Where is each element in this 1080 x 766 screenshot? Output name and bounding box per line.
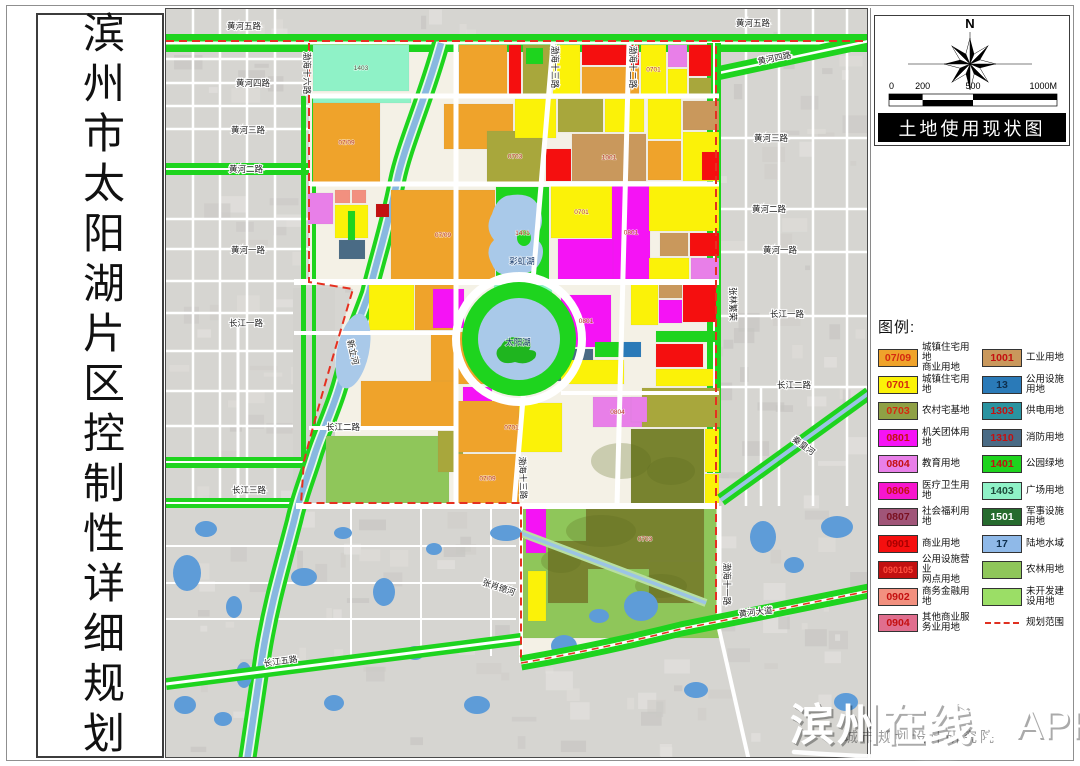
terrain-texture (209, 87, 218, 93)
map-parcel (689, 45, 711, 76)
legend-label: 医疗卫生用地 (922, 481, 976, 502)
map-parcel (631, 284, 658, 325)
map-parcel (459, 45, 507, 94)
legend-swatch: 07/09 (878, 349, 918, 367)
legend-item: 0801机关团体用地 (878, 425, 976, 452)
road-label: 黄河五路 (736, 18, 771, 28)
parcel-code: 0703 (508, 154, 523, 161)
panel-divider (870, 8, 871, 758)
legend-item: 0904其他商业服 务业用地 (878, 610, 976, 637)
legend-item: 17陆地水域 (982, 531, 1070, 558)
terrain-texture (512, 717, 537, 722)
pond (214, 712, 232, 726)
map-parcel (528, 571, 546, 621)
legend-label: 广场用地 (1026, 486, 1064, 496)
road-label: 渤海十三路 (517, 456, 528, 499)
terrain-texture (818, 538, 835, 552)
terrain-texture (276, 299, 293, 307)
map-parcel (308, 193, 333, 224)
map-parcel (656, 369, 713, 386)
terrain-texture (204, 203, 230, 219)
pond (684, 682, 708, 698)
terrain-texture (236, 222, 254, 232)
terrain-texture (818, 695, 831, 713)
legend-item: 1303供电用地 (982, 398, 1070, 425)
map-parcel (631, 397, 647, 422)
legend-item: 1310消防用地 (982, 425, 1070, 452)
parcel-code: 07/09 (338, 140, 355, 147)
legend-swatch: 13 (982, 376, 1022, 394)
terrain-texture (546, 671, 573, 690)
legend-swatch: 0902 (878, 588, 918, 606)
legend-label: 供电用地 (1026, 406, 1064, 416)
legend-item: 未开发建设用地 (982, 584, 1070, 611)
terrain-texture (764, 663, 778, 669)
scale-tick: 0 (889, 81, 894, 91)
planning-map-page: 滨州市太阳湖片区控制性详细规划 1403070107/090703100107/… (0, 0, 1080, 766)
legend-item: 1401公园绿地 (982, 451, 1070, 478)
terrain-texture (792, 345, 803, 358)
legend-swatch: 1403 (982, 482, 1022, 500)
compass-and-scale: N02005001000M (875, 16, 1065, 110)
terrain-texture (266, 423, 292, 434)
legend-swatch: 0901 (878, 535, 918, 553)
terrain-texture (664, 659, 690, 673)
legend-label: 农村宅基地 (922, 406, 970, 416)
terrain-texture (448, 512, 468, 529)
pond (589, 609, 609, 623)
terrain-texture (226, 622, 235, 628)
terrain-texture (627, 698, 634, 710)
terrain-texture (818, 461, 847, 466)
terrain-texture (764, 583, 786, 600)
parcel-code: 1001 (602, 155, 617, 162)
road-label: 黄河二路 (752, 204, 787, 214)
pond (821, 516, 853, 538)
legend-label: 陆地水域 (1026, 539, 1064, 549)
map-parcel (369, 285, 414, 330)
parcel-code: 07/09 (479, 476, 496, 483)
pond (291, 568, 317, 586)
map-parcel (648, 141, 681, 180)
legend-item: 农林用地 (982, 557, 1070, 584)
parcel-code: 0701 (646, 67, 661, 74)
terrain-texture (476, 663, 501, 674)
legend-swatch: 090105 (878, 561, 918, 579)
pond (624, 591, 658, 621)
legend-label: 社会福利用地 (922, 507, 976, 528)
terrain-texture (250, 366, 278, 370)
terrain-texture (359, 549, 380, 561)
road-label: 黄河二路 (229, 164, 264, 174)
map-parcel (656, 331, 719, 342)
terrain-texture (297, 551, 303, 570)
map-parcel (648, 99, 681, 139)
map-parcel (689, 78, 711, 94)
legend-item: 0701城镇住宅用地 (878, 372, 976, 399)
road-label: 渤海十三路 (550, 46, 560, 89)
terrain-texture (246, 391, 265, 403)
map-parcel (526, 509, 546, 553)
scale-bar (889, 94, 923, 100)
pond (226, 596, 242, 618)
terrain-texture (501, 673, 509, 681)
terrain-texture (771, 550, 782, 564)
road-label: 黄河五路 (227, 21, 262, 31)
map-parcel (622, 342, 641, 357)
road-label: 黄河三路 (231, 125, 266, 135)
terrain-texture (231, 545, 247, 562)
legend-label: 未开发建设用地 (1026, 587, 1070, 608)
parcel-code: 0701 (504, 425, 519, 432)
terrain-texture (805, 511, 829, 520)
map-parcel (659, 300, 682, 323)
parcel-code: 1401 (515, 230, 530, 237)
pond (464, 696, 490, 714)
terrain-texture (708, 690, 733, 699)
pond (174, 696, 196, 714)
road-label: 长江一路 (770, 309, 805, 319)
legend-item: 0902商务金融用地 (878, 584, 976, 611)
legend-item: 1501军事设施用地 (982, 504, 1070, 531)
map-parcel (659, 284, 682, 298)
legend-label: 机关团体用地 (922, 428, 976, 449)
map-parcel (656, 344, 703, 367)
map-parcel (526, 48, 543, 64)
terrain-texture (727, 648, 750, 662)
legend-swatch (982, 614, 1022, 632)
scale-bar (973, 94, 1057, 100)
legend-label: 工业用地 (1026, 353, 1064, 363)
terrain-texture (366, 667, 385, 682)
legend-swatch (982, 588, 1022, 606)
terrain-texture (782, 218, 807, 232)
terrain-texture (825, 652, 841, 664)
map-parcel (683, 284, 716, 322)
map-parcel (558, 99, 603, 132)
terrain-texture (807, 129, 826, 134)
terrain-texture (437, 560, 455, 569)
parcel-code: 0804 (610, 409, 625, 416)
road-label: 黄河三路 (754, 133, 789, 143)
legend-swatch: 0801 (878, 429, 918, 447)
terrain-texture (824, 357, 837, 368)
road-label: 长江三路 (232, 485, 267, 495)
terrain-texture (191, 747, 207, 752)
terrain-texture (660, 744, 672, 756)
legend-swatch: 17 (982, 535, 1022, 553)
parcel-code: 07/09 (435, 232, 452, 239)
legend-item: 1001工业用地 (982, 345, 1070, 372)
legend-label: 公用设施营业 网点用地 (922, 555, 976, 586)
terrain-texture (254, 64, 268, 68)
map-parcel (546, 149, 571, 181)
terrain-texture (341, 553, 346, 568)
terrain-texture (764, 164, 777, 179)
legend-heading: 图例: (878, 316, 1070, 337)
parcel-code: 0801 (579, 318, 594, 325)
map-parcel (691, 258, 719, 279)
pond (834, 693, 858, 711)
terrain-texture (807, 396, 826, 406)
terrain-texture (198, 610, 210, 617)
terrain-texture (778, 616, 790, 629)
terrain-texture (567, 688, 580, 701)
landuse-map-canvas: 1403070107/090703100107/0914010701080108… (166, 9, 868, 758)
legend-item: 0804教育用地 (878, 451, 976, 478)
legend-label: 公园绿地 (1026, 459, 1064, 469)
map-parcel (668, 45, 687, 67)
map-parcel (649, 186, 719, 231)
map-panel: 1403070107/090703100107/0914010701080108… (165, 8, 868, 758)
parcel-code: 0701 (574, 209, 589, 216)
boundary-dash-sample (985, 622, 1019, 624)
terrain-texture (200, 626, 207, 632)
legend-swatch: 1501 (982, 508, 1022, 526)
farm-texture (591, 443, 651, 479)
pond (334, 527, 352, 539)
terrain-texture (698, 708, 706, 721)
legend-column-right: 1001工业用地13公用设施用地1303供电用地1310消防用地1401公园绿地… (982, 345, 1070, 637)
terrain-texture (762, 147, 785, 162)
map-parcel (660, 233, 688, 256)
terrain-texture (850, 161, 856, 166)
map-title: 土地使用现状图 (878, 113, 1066, 142)
road-label: 黄河一路 (763, 245, 798, 255)
map-parcel (376, 204, 389, 217)
pond (324, 695, 344, 711)
legend-item: 0807社会福利用地 (878, 504, 976, 531)
map-parcel (595, 342, 621, 357)
farm-texture (566, 515, 636, 547)
terrain-texture (751, 733, 760, 742)
legend-swatch: 1001 (982, 349, 1022, 367)
terrain-texture (359, 520, 386, 531)
green-corridor (301, 96, 306, 458)
pond (750, 521, 776, 553)
water-label: 彩虹湖 (509, 256, 535, 266)
terrain-texture (734, 84, 742, 99)
legend-label: 商业用地 (922, 539, 960, 549)
terrain-texture (822, 68, 832, 74)
pond (173, 555, 201, 591)
legend-item: 0806医疗卫生用地 (878, 478, 976, 505)
scale-tick: 200 (915, 81, 930, 91)
legend-label: 其他商业服 务业用地 (922, 613, 970, 634)
scale-bar (923, 100, 973, 106)
legend-label: 城镇住宅用地 商业用地 (922, 343, 976, 374)
terrain-texture (829, 324, 840, 339)
terrain-texture (847, 437, 868, 454)
map-parcel (668, 69, 687, 94)
parcel-code: 1403 (354, 65, 369, 72)
terrain-texture (444, 546, 466, 557)
scale-tick: 500 (965, 81, 980, 91)
terrain-texture (277, 214, 303, 226)
map-parcel (326, 436, 449, 503)
terrain-texture (561, 741, 586, 752)
road-label: 渤海十二路 (628, 46, 638, 89)
road-label: 黄河一路 (231, 245, 266, 255)
road-label: 长江二路 (326, 422, 361, 432)
legend-swatch: 0701 (878, 376, 918, 394)
legend-item: 07/09城镇住宅用地 商业用地 (878, 345, 976, 372)
legend-swatch: 0807 (878, 508, 918, 526)
map-parcel (690, 233, 719, 256)
terrain-texture (390, 550, 408, 567)
legend-label: 公用设施用地 (1026, 375, 1070, 396)
legend: 图例: 07/09城镇住宅用地 商业用地0701城镇住宅用地0703农村宅基地0… (878, 316, 1070, 637)
pond (195, 521, 217, 537)
scale-tick: 1000M (1029, 81, 1057, 91)
legend-label: 教育用地 (922, 459, 960, 469)
terrain-texture (421, 16, 426, 30)
map-parcel (361, 381, 454, 429)
road-label: 长江一路 (229, 318, 264, 328)
terrain-texture (570, 702, 590, 719)
legend-label: 商务金融用地 (922, 587, 976, 608)
legend-swatch: 1310 (982, 429, 1022, 447)
terrain-texture (835, 634, 840, 641)
title-panel: 滨州市太阳湖片区控制性详细规划 (36, 13, 164, 758)
terrain-texture (237, 295, 260, 311)
water-label: 太阳湖 (505, 337, 531, 347)
legend-item: 0703农村宅基地 (878, 398, 976, 425)
map-parcel (649, 258, 689, 279)
legend-item: 13公用设施用地 (982, 372, 1070, 399)
terrain-texture (804, 495, 819, 508)
page-title: 滨州市太阳湖片区控制性详细规划 (70, 11, 131, 761)
road-label: 张林繁荣 (728, 287, 738, 322)
map-parcel (339, 240, 365, 259)
pond (784, 557, 804, 573)
legend-swatch: 0904 (878, 614, 918, 632)
legend-label: 军事设施用地 (1026, 507, 1070, 528)
terrain-texture (802, 623, 808, 630)
parcel-code: 0703 (638, 536, 653, 543)
road-label: 渤海十六路 (302, 52, 312, 95)
legend-label: 消防用地 (1026, 433, 1064, 443)
terrain-texture (197, 329, 211, 337)
road-label: 黄河四路 (236, 78, 271, 88)
terrain-texture (429, 9, 442, 24)
terrain-texture (801, 96, 819, 110)
legend-swatch: 0804 (878, 455, 918, 473)
map-parcel (352, 190, 366, 203)
legend-swatch: 1303 (982, 402, 1022, 420)
map-parcel (335, 190, 350, 203)
pond (490, 525, 522, 541)
terrain-texture (518, 736, 526, 749)
legend-column-left: 07/09城镇住宅用地 商业用地0701城镇住宅用地0703农村宅基地0801机… (878, 345, 976, 637)
terrain-texture (169, 365, 189, 372)
terrain-texture (839, 56, 862, 67)
terrain-texture (184, 307, 199, 324)
legend-label: 规划范围 (1026, 618, 1064, 628)
terrain-texture (856, 329, 865, 338)
map-parcel (509, 45, 521, 94)
terrain-texture (410, 737, 423, 745)
road-label: 渤海十一路 (722, 563, 732, 606)
terrain-texture (174, 55, 202, 69)
north-label: N (965, 16, 974, 31)
terrain-texture (805, 266, 810, 271)
legend-swatch (982, 561, 1022, 579)
pond (373, 578, 395, 606)
legend-label: 城镇住宅用地 (922, 375, 976, 396)
terrain-texture (724, 340, 734, 349)
terrain-texture (264, 373, 282, 377)
legend-swatch: 1401 (982, 455, 1022, 473)
map-key-box: N02005001000M 土地使用现状图 (874, 15, 1070, 146)
terrain-texture (656, 702, 663, 718)
legend-item: 090105公用设施营业 网点用地 (878, 557, 976, 584)
pond (426, 543, 442, 555)
parcel-code: 0801 (624, 230, 639, 237)
terrain-texture (333, 609, 341, 619)
road-label: 长江二路 (777, 380, 812, 390)
map-parcel (683, 101, 719, 130)
legend-item: 规划范围 (982, 610, 1070, 637)
legend-swatch: 0806 (878, 482, 918, 500)
terrain-texture (315, 564, 327, 582)
terrain-texture (674, 685, 682, 691)
map-parcel (558, 239, 613, 279)
legend-label: 农林用地 (1026, 565, 1064, 575)
legend-swatch: 0703 (878, 402, 918, 420)
terrain-texture (805, 629, 827, 646)
farm-texture (647, 457, 695, 485)
legend-item: 1403广场用地 (982, 478, 1070, 505)
